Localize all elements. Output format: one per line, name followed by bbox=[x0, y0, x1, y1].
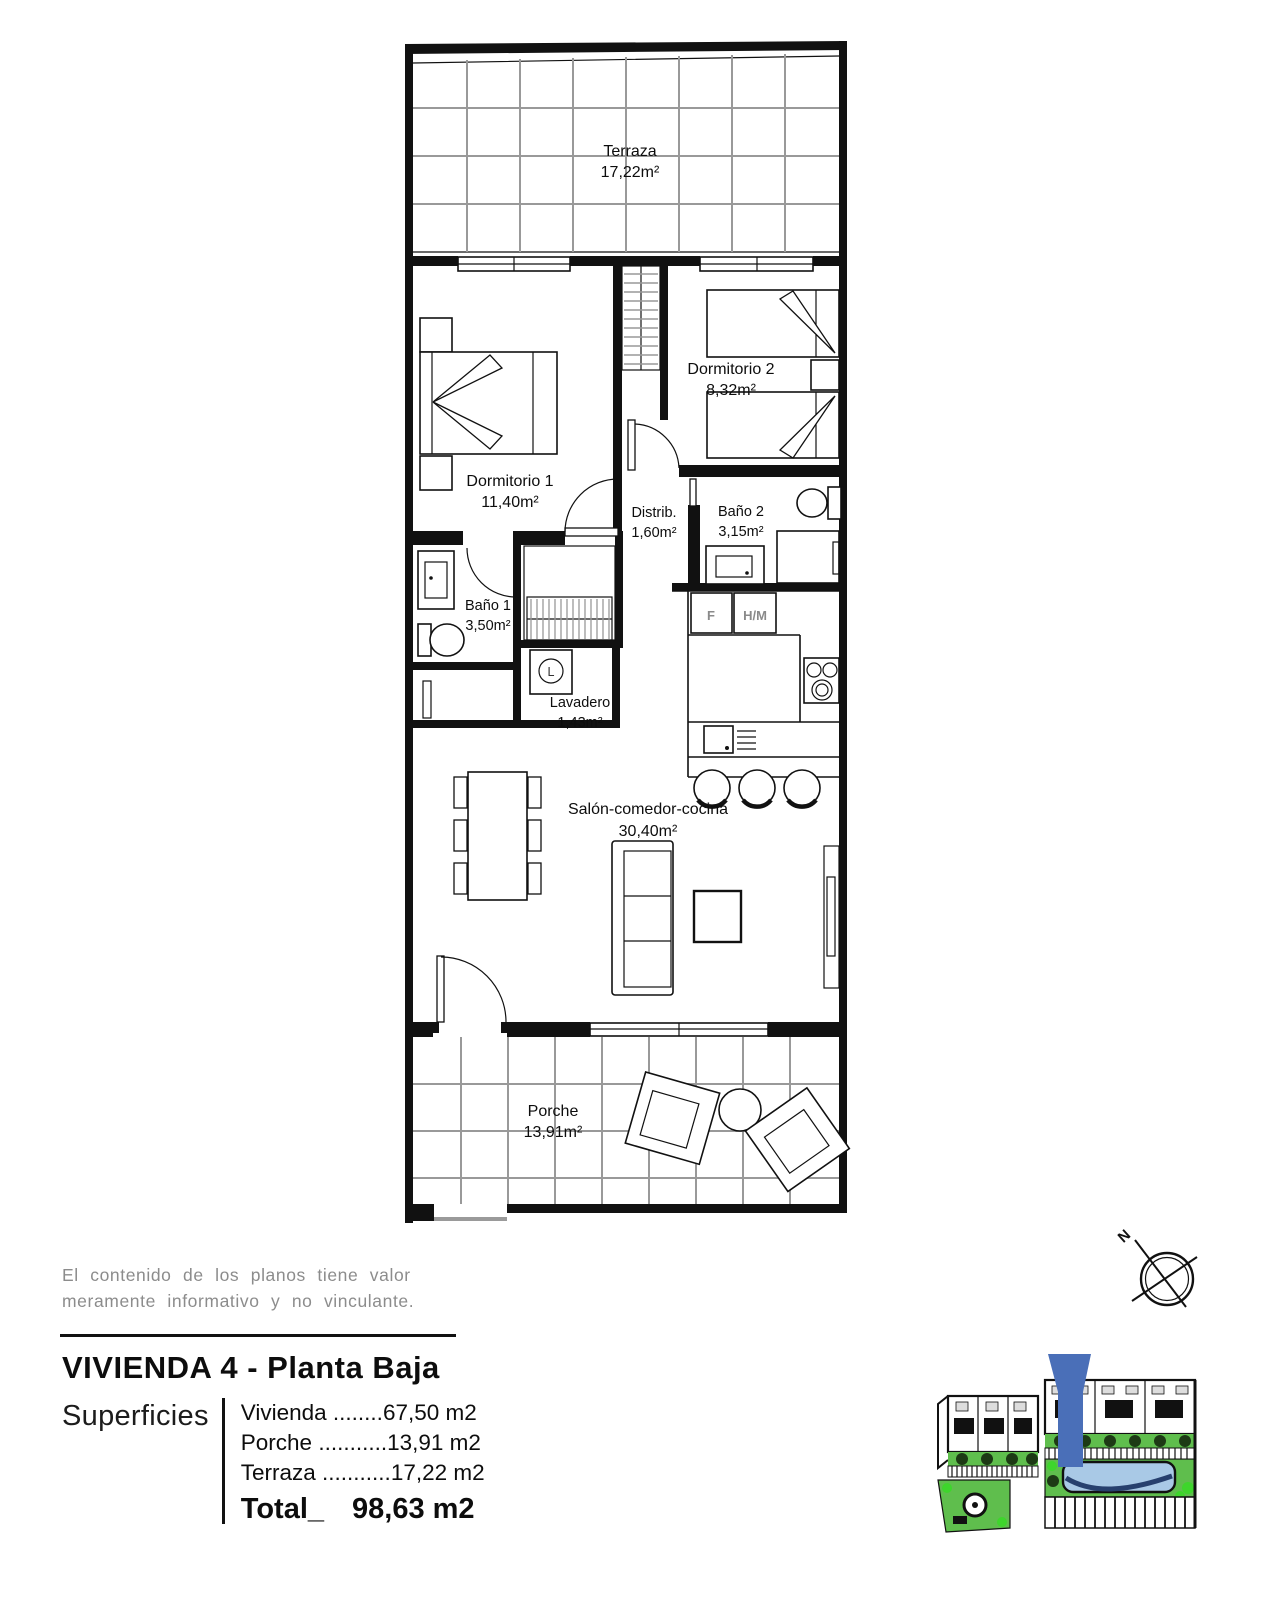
porche-step bbox=[413, 1204, 434, 1221]
superficies-row-terraza: Terraza ...........17,22 m2 bbox=[241, 1458, 485, 1488]
dormitorio1-room-label: Dormitorio 1 bbox=[466, 473, 553, 490]
window-dormitorio2 bbox=[700, 257, 813, 271]
page: Terraza 17,22m² bbox=[0, 0, 1275, 1597]
dining-set bbox=[454, 772, 541, 900]
single-bed bbox=[707, 290, 839, 357]
laundry-machine-label: L bbox=[548, 665, 555, 679]
faucet-dot bbox=[745, 571, 749, 575]
shower bbox=[777, 531, 839, 583]
toilet-tank bbox=[828, 487, 841, 519]
distribuidor-room-area: 1,60m² bbox=[631, 525, 676, 541]
door-swing bbox=[441, 957, 506, 1022]
stove bbox=[804, 658, 839, 703]
superficies-label: Superficies bbox=[62, 1398, 209, 1524]
plan-title: VIVIENDA 4 - Planta Baja bbox=[62, 1350, 440, 1386]
distribuidor-room-label: Distrib. bbox=[631, 505, 676, 521]
total-value: 98,63 m2 bbox=[352, 1493, 475, 1525]
terraza-area: Terraza 17,22m² bbox=[405, 41, 847, 256]
door-leaf bbox=[628, 420, 635, 470]
coffee-table bbox=[694, 891, 741, 942]
nightstand bbox=[420, 456, 452, 490]
disclaimer-text: El contenido de los planos tiene valor m… bbox=[62, 1262, 414, 1314]
disclaimer-line2: meramente informativo y no vinculante. bbox=[62, 1291, 414, 1311]
porche-room-area: 13,91m² bbox=[524, 1124, 583, 1141]
compass: N bbox=[1115, 1226, 1197, 1307]
sink-vanity bbox=[706, 546, 764, 584]
single-bed bbox=[707, 392, 839, 458]
salon: Salón-comedor-cocina 30,40m² bbox=[437, 772, 839, 1022]
porch-armchair bbox=[625, 1072, 719, 1164]
compass-ring bbox=[1141, 1253, 1193, 1305]
bano1-room-label: Baño 1 bbox=[465, 598, 511, 614]
dormitorio2-room-area: 8,32m² bbox=[706, 382, 756, 399]
porche-area: Porche 13,91m² bbox=[405, 1037, 849, 1223]
porche-bottom-wall bbox=[507, 1204, 846, 1213]
bano2: Baño 2 3,15m² bbox=[690, 479, 841, 584]
porche-room-label: Porche bbox=[528, 1103, 579, 1120]
terraza-right-wall bbox=[839, 41, 847, 256]
entry-door bbox=[437, 956, 506, 1022]
dormitorio1-room-area: 11,40m² bbox=[481, 494, 539, 511]
door-swing bbox=[635, 424, 679, 468]
lavadero: L Lavadero 1,43m² bbox=[530, 650, 610, 731]
kitchen: F H/M bbox=[672, 591, 839, 807]
sofa bbox=[612, 841, 673, 995]
door-swing bbox=[565, 479, 618, 532]
distribuidor: Distrib. 1,60m² bbox=[631, 505, 676, 541]
bano2-room-label: Baño 2 bbox=[718, 504, 764, 520]
door-leaf bbox=[565, 528, 618, 536]
terraza-top-wall bbox=[405, 41, 847, 54]
toilet bbox=[797, 489, 827, 517]
bano1: Baño 1 3,50m² bbox=[418, 547, 516, 718]
toilet-tank bbox=[418, 624, 431, 656]
nightstand bbox=[811, 360, 839, 390]
right-wall bbox=[839, 256, 847, 1037]
porche-left-wall bbox=[405, 1037, 413, 1223]
door-leaf bbox=[690, 479, 696, 506]
disclaimer-line1: El contenido de los planos tiene valor bbox=[62, 1265, 411, 1285]
window-dormitorio1 bbox=[458, 257, 570, 271]
bano2-room-area: 3,15m² bbox=[718, 524, 763, 540]
divider-rule bbox=[60, 1334, 456, 1337]
washer-label: H/M bbox=[743, 608, 767, 623]
left-wall bbox=[405, 256, 413, 1037]
nightstand bbox=[420, 318, 452, 352]
fridge-label: F bbox=[707, 608, 715, 623]
site-parking bbox=[1045, 1497, 1195, 1528]
door-leaf bbox=[437, 956, 444, 1022]
superficies-rows: Vivienda ........67,50 m2 Porche .......… bbox=[241, 1398, 485, 1524]
faucet-dot bbox=[429, 576, 433, 580]
window-salon bbox=[590, 1023, 768, 1036]
porche-right-wall bbox=[839, 1037, 847, 1213]
superficies-row-porche: Porche ...........13,91 m2 bbox=[241, 1428, 485, 1458]
compass-north-label: N bbox=[1115, 1226, 1134, 1246]
wardrobe-corridor bbox=[524, 546, 615, 640]
kitchen-sink bbox=[704, 726, 756, 753]
wardrobe-top bbox=[622, 266, 660, 370]
dormitorio2-room-label: Dormitorio 2 bbox=[687, 361, 774, 378]
salon-room-label: Salón-comedor-cocina bbox=[568, 801, 728, 818]
door-swing bbox=[467, 548, 516, 597]
superficies-total: Total_98,63 m2 bbox=[241, 1494, 485, 1524]
tv-unit bbox=[824, 846, 839, 988]
terraza-room-area: 17,22m² bbox=[601, 164, 660, 181]
site-plan-thumbnail bbox=[938, 1354, 1195, 1532]
dormitorio1: Dormitorio 1 11,40m² bbox=[420, 318, 618, 536]
lavadero-room-area: 1,43m² bbox=[557, 715, 602, 731]
shower-detail bbox=[423, 681, 431, 718]
bano1-room-area: 3,50m² bbox=[465, 618, 510, 634]
sink-vanity bbox=[418, 551, 454, 609]
salon-room-area: 30,40m² bbox=[619, 823, 678, 840]
terraza-room-label: Terraza bbox=[603, 143, 656, 160]
superficies-divider bbox=[222, 1398, 225, 1524]
dining-table bbox=[468, 772, 527, 900]
superficies-block: Superficies Vivienda ........67,50 m2 Po… bbox=[62, 1398, 485, 1524]
porch-armchair bbox=[745, 1088, 849, 1192]
total-label: Total_ bbox=[241, 1493, 324, 1525]
lavadero-room-label: Lavadero bbox=[550, 695, 610, 711]
toilet bbox=[430, 624, 464, 656]
terraza-left-wall bbox=[405, 44, 413, 256]
superficies-row-vivienda: Vivienda ........67,50 m2 bbox=[241, 1398, 485, 1428]
